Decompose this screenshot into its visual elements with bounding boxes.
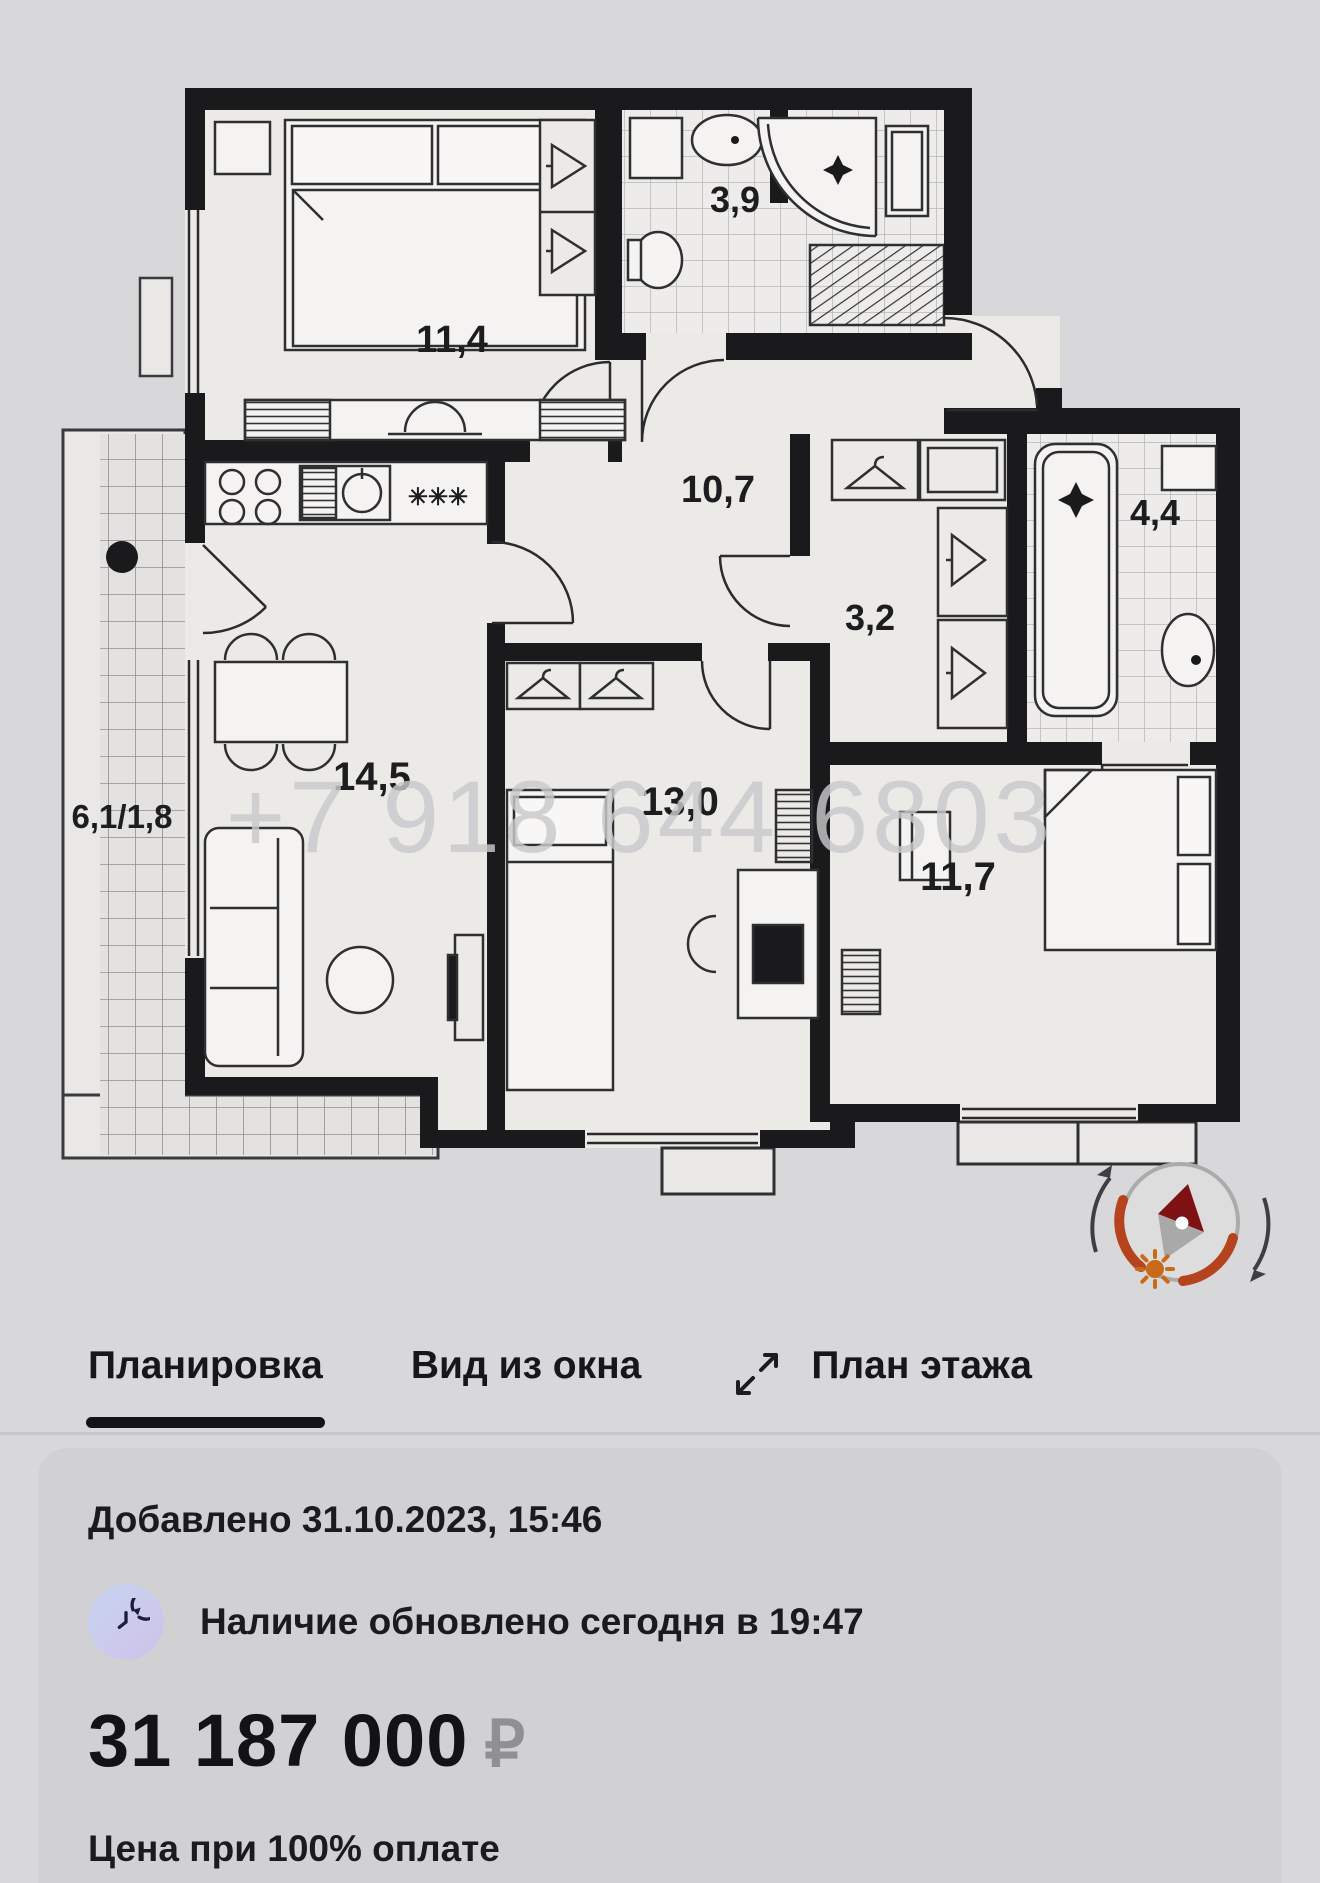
price-row: 31 187 000 ₽: [88, 1698, 525, 1783]
tab-vid-iz-okna-label: Вид из окна: [411, 1344, 642, 1387]
listing-card: Добавлено 31.10.2023, 15:46 Наличие обно…: [38, 1448, 1282, 1883]
kitchen-vent-marker: ✳✳✳: [408, 484, 468, 511]
clock-refresh-icon: [88, 1584, 164, 1660]
floor-plan-image[interactable]: 11,4 3,9 10,7 3,2 4,4 14,5 13,0 11,7 6,1…: [0, 0, 1320, 1300]
expand-icon[interactable]: [731, 1348, 783, 1405]
tab-bar: Планировка Вид из окна План этажа: [0, 1330, 1320, 1428]
room-label-bathroom-1: 3,9: [710, 179, 760, 220]
tabs-divider: [0, 1432, 1320, 1435]
sun-icon: [1137, 1251, 1173, 1287]
tab-vid-iz-okna[interactable]: Вид из окна: [411, 1344, 642, 1428]
listing-screen: 11,4 3,9 10,7 3,2 4,4 14,5 13,0 11,7 6,1…: [0, 0, 1320, 1883]
added-date: Добавлено 31.10.2023, 15:46: [88, 1499, 602, 1541]
tab-planirovka-label: Планировка: [88, 1344, 323, 1387]
window-ledge: [140, 278, 172, 376]
room-label-bathroom-2: 4,4: [1130, 492, 1180, 533]
price-value: 31 187 000: [88, 1698, 468, 1783]
tab-plan-etazha-label: План этажа: [811, 1344, 1032, 1387]
availability-row: Наличие обновлено сегодня в 19:47: [88, 1584, 864, 1660]
floor-plan-svg: 11,4 3,9 10,7 3,2 4,4 14,5 13,0 11,7 6,1…: [0, 0, 1320, 1300]
laundry-hatch: [810, 245, 944, 325]
price-note: Цена при 100% оплате: [88, 1828, 500, 1870]
availability-text: Наличие обновлено сегодня в 19:47: [200, 1601, 864, 1643]
tab-planirovka[interactable]: Планировка: [88, 1344, 323, 1428]
room-label-hall: 3,2: [845, 597, 895, 638]
balcony-column: [106, 541, 138, 573]
room-label-hallway: 10,7: [681, 469, 755, 511]
currency-symbol: ₽: [484, 1707, 525, 1782]
compass-icon[interactable]: [1092, 1164, 1268, 1287]
tab-plan-etazha[interactable]: План этажа: [811, 1344, 1032, 1428]
room-label-balcony: 6,1/1,8: [72, 798, 173, 835]
room-label-bedroom-1: 11,4: [416, 319, 488, 361]
watermark-phone: +7 918 644 6803: [226, 760, 1055, 874]
